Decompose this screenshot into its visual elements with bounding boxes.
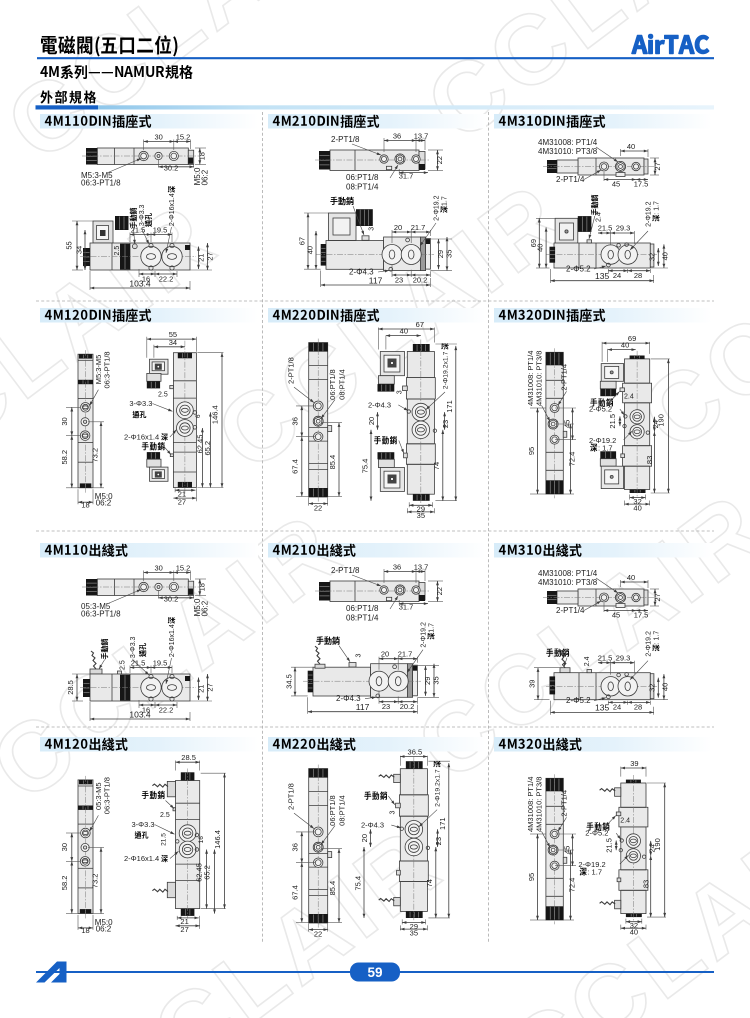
svg-text:3-Φ3.3: 3-Φ3.3: [129, 399, 152, 408]
svg-text:3: 3: [389, 811, 396, 815]
svg-text:CCLAIR: CCLAIR: [0, 489, 362, 821]
svg-text:06:PT1/8: 06:PT1/8: [346, 173, 379, 182]
svg-text:85.4: 85.4: [328, 881, 337, 896]
svg-text:23: 23: [441, 420, 450, 428]
svg-text:20.2: 20.2: [413, 276, 428, 285]
svg-text:73.2: 73.2: [90, 874, 99, 889]
svg-text:135: 135: [595, 271, 609, 281]
svg-text:21.5: 21.5: [605, 838, 614, 853]
svg-text:58.2: 58.2: [60, 876, 69, 891]
svg-text:3: 3: [355, 654, 362, 658]
svg-text:2-Φ4.3: 2-Φ4.3: [349, 268, 374, 277]
svg-text:2.4: 2.4: [620, 818, 630, 825]
svg-text:22.2: 22.2: [159, 706, 174, 715]
svg-text:67: 67: [416, 320, 424, 329]
svg-text:24: 24: [651, 420, 660, 428]
svg-text:: 1.7: : 1.7: [598, 444, 613, 453]
svg-text:06:3-PT1/8: 06:3-PT1/8: [81, 179, 121, 188]
svg-text:40: 40: [400, 327, 408, 336]
svg-text:19.5: 19.5: [153, 226, 168, 235]
svg-text:27: 27: [180, 925, 188, 934]
svg-text:20.2: 20.2: [400, 702, 415, 711]
svg-text:20: 20: [381, 650, 389, 659]
svg-text:22: 22: [314, 504, 322, 513]
svg-text:16: 16: [198, 836, 205, 844]
svg-text:65.2: 65.2: [203, 441, 212, 456]
svg-text:83: 83: [645, 456, 654, 464]
svg-text:2-Φ4.3: 2-Φ4.3: [361, 821, 384, 830]
svg-text:32: 32: [648, 684, 657, 692]
svg-text:1.7: 1.7: [428, 623, 435, 633]
svg-text:2-PT1/4: 2-PT1/4: [556, 175, 585, 184]
svg-text:2-Φ5.2: 2-Φ5.2: [589, 405, 612, 414]
svg-text:67: 67: [298, 237, 307, 245]
svg-text:27: 27: [178, 497, 186, 506]
svg-text:2-PT1/8: 2-PT1/8: [331, 566, 360, 575]
svg-text:34: 34: [75, 246, 84, 254]
svg-text:20: 20: [367, 417, 376, 425]
svg-text:17.5: 17.5: [634, 611, 649, 620]
svg-text:103.4: 103.4: [129, 710, 151, 720]
svg-text:2-Φ16x1.4: 2-Φ16x1.4: [124, 432, 159, 441]
svg-text:CCLAIR: CCLAIR: [396, 469, 750, 801]
svg-text:35: 35: [432, 676, 441, 684]
svg-text:: 1.7: : 1.7: [587, 868, 602, 877]
svg-text:40: 40: [661, 683, 670, 691]
svg-text:06:PT1/8: 06:PT1/8: [328, 795, 337, 825]
svg-text:29.3: 29.3: [616, 653, 631, 662]
svg-text:: 1.7: : 1.7: [653, 631, 660, 645]
svg-text:15.2: 15.2: [176, 133, 191, 142]
svg-text:08:PT1/4: 08:PT1/4: [346, 614, 379, 623]
svg-text:27: 27: [653, 593, 662, 601]
svg-text:27: 27: [206, 683, 215, 691]
svg-text:22: 22: [435, 156, 444, 164]
svg-text:30: 30: [60, 843, 69, 851]
svg-text:18: 18: [81, 926, 89, 935]
svg-text:36: 36: [393, 132, 401, 141]
svg-text:103.4: 103.4: [129, 279, 151, 289]
svg-text:2.4: 2.4: [624, 394, 634, 401]
svg-text:40: 40: [627, 573, 635, 582]
svg-text:34.5: 34.5: [285, 674, 294, 689]
svg-text:2-Φ16x1.4: 2-Φ16x1.4: [169, 193, 176, 226]
svg-text:72.4: 72.4: [568, 878, 577, 893]
svg-text:2.4: 2.4: [584, 656, 591, 666]
svg-text:2-Φ16x1.4: 2-Φ16x1.4: [124, 854, 159, 863]
svg-text:3-Φ3.3: 3-Φ3.3: [130, 636, 137, 658]
svg-text:74: 74: [425, 879, 434, 887]
svg-text:40: 40: [630, 928, 638, 937]
svg-text:06:2: 06:2: [201, 600, 210, 616]
svg-text:3-Φ3.3: 3-Φ3.3: [132, 820, 155, 829]
svg-text:2-Φ19.2: 2-Φ19.2: [433, 195, 440, 221]
svg-text:39: 39: [528, 680, 537, 688]
svg-text:21.5: 21.5: [608, 414, 617, 429]
svg-text:85.4: 85.4: [328, 455, 337, 470]
svg-text:67.4: 67.4: [290, 885, 299, 900]
svg-text:06:2: 06:2: [201, 169, 210, 185]
svg-text:23: 23: [382, 702, 390, 711]
svg-text:146.4: 146.4: [210, 405, 219, 424]
svg-text:4M31010: PT3/8: 4M31010: PT3/8: [535, 351, 544, 406]
svg-text:15.2: 15.2: [176, 564, 191, 573]
svg-text:36: 36: [290, 843, 299, 851]
svg-text:45: 45: [612, 180, 620, 189]
svg-text:28.5: 28.5: [181, 753, 196, 762]
svg-text:2.5: 2.5: [120, 660, 127, 670]
svg-text:21.5: 21.5: [161, 833, 168, 846]
svg-text:21: 21: [197, 685, 206, 693]
svg-text:28: 28: [634, 271, 642, 280]
svg-text:22.2: 22.2: [159, 275, 174, 284]
svg-text:21.7: 21.7: [398, 650, 413, 659]
svg-text:20: 20: [394, 223, 402, 232]
svg-text:18: 18: [198, 583, 207, 591]
svg-text:59: 59: [367, 965, 382, 980]
svg-text:27: 27: [653, 162, 662, 170]
svg-text:1.7: 1.7: [441, 196, 448, 206]
svg-text:2-Φ4.3: 2-Φ4.3: [368, 400, 391, 409]
svg-text:67.4: 67.4: [290, 459, 299, 474]
svg-text:74: 74: [432, 462, 441, 470]
svg-text:2.5: 2.5: [158, 391, 168, 398]
svg-text:18: 18: [198, 152, 207, 160]
svg-text:18: 18: [81, 501, 89, 510]
svg-text:21.5: 21.5: [598, 224, 613, 233]
svg-text:2-Φ19.2x1.7: 2-Φ19.2x1.7: [442, 351, 449, 389]
svg-text:4M31008: PT1/4: 4M31008: PT1/4: [538, 138, 598, 147]
svg-text:2-Φ4.3: 2-Φ4.3: [336, 694, 361, 703]
svg-text:117: 117: [356, 702, 370, 712]
svg-text:28.5: 28.5: [66, 680, 75, 695]
svg-text:75.4: 75.4: [354, 876, 363, 891]
svg-text:40: 40: [621, 341, 629, 350]
svg-text:2-Φ19.2: 2-Φ19.2: [645, 201, 652, 227]
svg-text:2-PT1/4: 2-PT1/4: [560, 364, 569, 391]
svg-text:2-Φ19.2x1.7: 2-Φ19.2x1.7: [435, 769, 442, 807]
svg-text:55: 55: [65, 241, 74, 249]
svg-text:73.2: 73.2: [90, 448, 99, 463]
svg-text:34: 34: [169, 338, 177, 347]
svg-text:171: 171: [445, 400, 454, 413]
svg-text:13.7: 13.7: [414, 563, 429, 572]
svg-text:2-PT1/4: 2-PT1/4: [556, 606, 585, 615]
svg-text:30.2: 30.2: [164, 595, 179, 604]
svg-text:2-PT1/8: 2-PT1/8: [287, 783, 296, 810]
svg-text:2.5: 2.5: [160, 812, 170, 819]
svg-text:23: 23: [395, 276, 403, 285]
svg-text:72.4: 72.4: [568, 452, 577, 467]
svg-text:31.7: 31.7: [399, 602, 414, 611]
svg-text:2-Φ19.2: 2-Φ19.2: [420, 622, 427, 648]
svg-text:30: 30: [60, 417, 69, 425]
svg-text:2-Φ5.2: 2-Φ5.2: [566, 696, 591, 705]
svg-text:83: 83: [641, 880, 650, 888]
svg-text:06:3-PT1/8: 06:3-PT1/8: [102, 777, 111, 814]
svg-text:39: 39: [630, 759, 638, 768]
svg-text:2-Φ5.2: 2-Φ5.2: [566, 265, 591, 274]
svg-text:06:2: 06:2: [96, 924, 112, 933]
svg-text:4M31008: PT1/4: 4M31008: PT1/4: [538, 569, 598, 578]
svg-text:2.5: 2.5: [114, 246, 121, 256]
svg-text:21.7: 21.7: [411, 223, 426, 232]
svg-text:24: 24: [648, 844, 657, 852]
svg-text:32: 32: [648, 253, 657, 261]
svg-text:13.7: 13.7: [414, 132, 429, 141]
svg-text:27: 27: [206, 252, 215, 260]
svg-text:35: 35: [410, 928, 418, 937]
svg-text:24: 24: [613, 271, 621, 280]
svg-text:31.7: 31.7: [399, 171, 414, 180]
svg-text:2-Φ16x1.4: 2-Φ16x1.4: [169, 624, 176, 657]
svg-text:2-PT1/8: 2-PT1/8: [331, 135, 360, 144]
svg-text:58.2: 58.2: [60, 450, 69, 465]
svg-text:36: 36: [393, 563, 401, 572]
svg-text:171: 171: [438, 817, 447, 830]
svg-text:21: 21: [197, 254, 206, 262]
svg-text:2-PT1/4: 2-PT1/4: [560, 790, 569, 817]
svg-text:23: 23: [434, 837, 443, 845]
svg-text:06:3-PT1/8: 06:3-PT1/8: [81, 610, 121, 619]
svg-text:4M31010: PT3/8: 4M31010: PT3/8: [538, 147, 598, 156]
svg-text:6: 6: [195, 414, 202, 418]
svg-text:28: 28: [634, 703, 642, 712]
svg-text:20: 20: [360, 834, 369, 842]
svg-text:2-PT1/8: 2-PT1/8: [287, 357, 296, 384]
svg-text:35: 35: [417, 511, 425, 520]
svg-text:17.5: 17.5: [634, 180, 649, 189]
svg-text:22: 22: [314, 930, 322, 939]
svg-text:30: 30: [155, 133, 163, 142]
svg-text:06:3-PT1/8: 06:3-PT1/8: [102, 351, 111, 388]
svg-text:65.2: 65.2: [203, 865, 212, 880]
svg-text:08:PT1/4: 08:PT1/4: [338, 795, 347, 825]
svg-text:4M31010: PT3/8: 4M31010: PT3/8: [538, 578, 598, 587]
svg-text:75.4: 75.4: [361, 459, 370, 474]
svg-text:36.5: 36.5: [408, 748, 423, 757]
svg-text:40: 40: [536, 244, 545, 252]
svg-text:08:PT1/4: 08:PT1/4: [338, 369, 347, 399]
svg-text:30.2: 30.2: [164, 164, 179, 173]
svg-text:06:2: 06:2: [96, 499, 112, 508]
svg-text:95: 95: [527, 873, 536, 881]
svg-text:45: 45: [612, 611, 620, 620]
svg-text:08:PT1/4: 08:PT1/4: [346, 183, 379, 192]
svg-text:2-Φ5.2: 2-Φ5.2: [585, 829, 608, 838]
svg-text:146.4: 146.4: [213, 830, 222, 849]
svg-text:135: 135: [595, 703, 609, 713]
svg-text:24: 24: [613, 703, 621, 712]
svg-text:40: 40: [627, 142, 635, 151]
svg-text:117: 117: [369, 276, 383, 286]
svg-text:22: 22: [435, 587, 444, 595]
svg-text:: 1.7: : 1.7: [653, 201, 660, 215]
svg-text:21.5: 21.5: [598, 653, 613, 662]
svg-text:3: 3: [396, 390, 403, 394]
svg-text:4M31010: PT3/8: 4M31010: PT3/8: [535, 777, 544, 832]
svg-text:2-Φ19.2: 2-Φ19.2: [645, 631, 652, 657]
svg-text:95: 95: [527, 447, 536, 455]
svg-text:36: 36: [290, 417, 299, 425]
svg-text:35: 35: [445, 250, 454, 258]
svg-text:2.4: 2.4: [596, 212, 603, 222]
svg-text:29.3: 29.3: [616, 224, 631, 233]
svg-text:3: 3: [368, 227, 375, 231]
svg-text:06:PT1/8: 06:PT1/8: [328, 369, 337, 399]
svg-text:40: 40: [661, 252, 670, 260]
svg-text:30: 30: [155, 564, 163, 573]
svg-text:19.5: 19.5: [153, 659, 168, 668]
svg-text:40: 40: [306, 246, 315, 254]
svg-text:40: 40: [633, 504, 641, 513]
svg-text:06:PT1/8: 06:PT1/8: [346, 604, 379, 613]
